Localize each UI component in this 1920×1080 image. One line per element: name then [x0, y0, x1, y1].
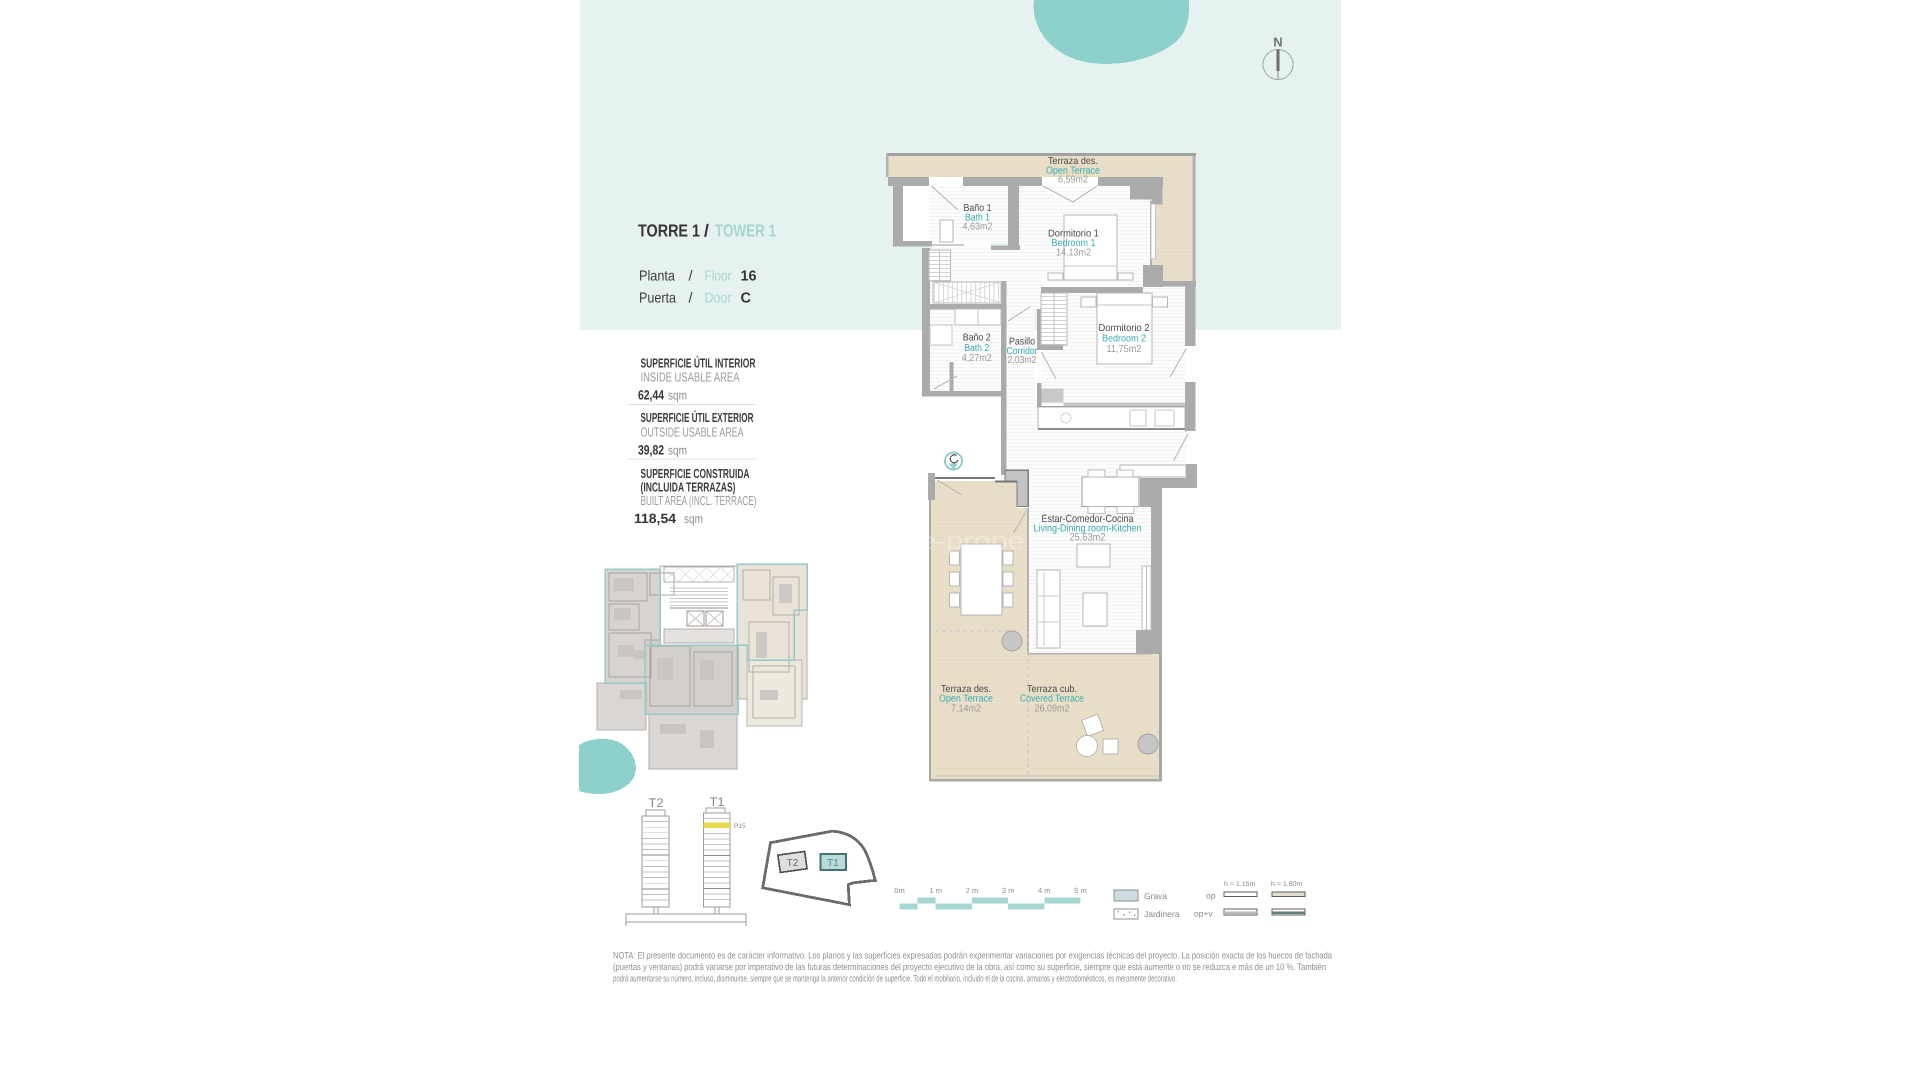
svg-text:OUTSIDE USABLE AREA: OUTSIDE USABLE AREA — [641, 425, 744, 440]
svg-text:Floor: Floor — [705, 269, 732, 285]
svg-text:7,14m2: 7,14m2 — [951, 704, 981, 715]
svg-text:T1: T1 — [827, 858, 839, 869]
svg-text:TOWER 1: TOWER 1 — [715, 221, 776, 241]
svg-text:BUILT AREA (INCL. TERRACE): BUILT AREA (INCL. TERRACE) — [641, 493, 757, 508]
svg-text:Baño 2: Baño 2 — [963, 333, 991, 344]
svg-text:sqm: sqm — [668, 389, 687, 403]
svg-text:T2: T2 — [649, 796, 664, 810]
svg-text:Puerta: Puerta — [639, 291, 677, 307]
svg-text:sqm: sqm — [684, 512, 703, 526]
svg-text:14,13m2: 14,13m2 — [1056, 248, 1091, 259]
svg-text:2,03m2: 2,03m2 — [1008, 355, 1037, 366]
svg-text:26,09m2: 26,09m2 — [1035, 704, 1070, 715]
svg-text:11,75m2: 11,75m2 — [1107, 344, 1142, 355]
svg-text:nte-prope: nte-prope — [893, 528, 1025, 555]
svg-text:3 m: 3 m — [1002, 886, 1015, 895]
svg-text:Jardinera: Jardinera — [1144, 909, 1180, 919]
svg-text:(puertas y ventanas) podrá var: (puertas y ventanas) podrá variarse por … — [613, 962, 1326, 973]
svg-text:NOTA: El presente documento es: NOTA: El presente documento es de caráct… — [613, 951, 1333, 962]
svg-text:Dormitorio 2: Dormitorio 2 — [1099, 323, 1150, 334]
svg-text:5 m: 5 m — [1074, 886, 1087, 895]
svg-text:T1: T1 — [710, 795, 725, 809]
svg-text:39,82: 39,82 — [638, 443, 664, 458]
svg-text:SUPERFICIE ÚTIL INTERIOR: SUPERFICIE ÚTIL INTERIOR — [641, 356, 756, 371]
svg-text:podrá aumentarse su número, in: podrá aumentarse su número, incluso, dis… — [613, 974, 1177, 985]
svg-text:op+v: op+v — [1194, 909, 1213, 919]
svg-text:Door: Door — [705, 291, 732, 307]
svg-text:Planta: Planta — [639, 269, 676, 285]
svg-text:SUPERFICIE ÚTIL EXTERIOR: SUPERFICIE ÚTIL EXTERIOR — [641, 410, 754, 425]
svg-text:16: 16 — [741, 269, 757, 285]
svg-text:/: / — [704, 221, 709, 241]
svg-text:INSIDE USABLE AREA: INSIDE USABLE AREA — [641, 370, 740, 385]
svg-text:C: C — [741, 291, 752, 307]
svg-text:h = 1.80m: h = 1.80m — [1271, 880, 1302, 888]
svg-text:op: op — [1206, 891, 1216, 901]
svg-text:6,59m2: 6,59m2 — [1058, 175, 1088, 186]
svg-text:1 m: 1 m — [929, 886, 942, 895]
svg-text:2 m: 2 m — [966, 886, 979, 895]
svg-text:62,44: 62,44 — [638, 388, 664, 403]
svg-text:TORRE 1: TORRE 1 — [638, 221, 700, 241]
svg-text:sqm: sqm — [668, 444, 687, 458]
svg-text:25,63m2: 25,63m2 — [1070, 532, 1106, 544]
svg-text:Grava: Grava — [1144, 891, 1167, 901]
svg-text:N: N — [1273, 35, 1282, 50]
svg-text:h = 1.15m: h = 1.15m — [1224, 880, 1255, 888]
svg-text:4 m: 4 m — [1038, 886, 1051, 895]
svg-text:4,27m2: 4,27m2 — [962, 353, 992, 364]
svg-text:0m: 0m — [894, 886, 904, 895]
svg-text:Bedroom 2: Bedroom 2 — [1102, 334, 1146, 345]
svg-text:P15: P15 — [734, 823, 746, 830]
svg-text:118,54: 118,54 — [634, 511, 677, 526]
svg-text:4,63m2: 4,63m2 — [963, 222, 993, 233]
svg-text:T2: T2 — [787, 858, 799, 869]
